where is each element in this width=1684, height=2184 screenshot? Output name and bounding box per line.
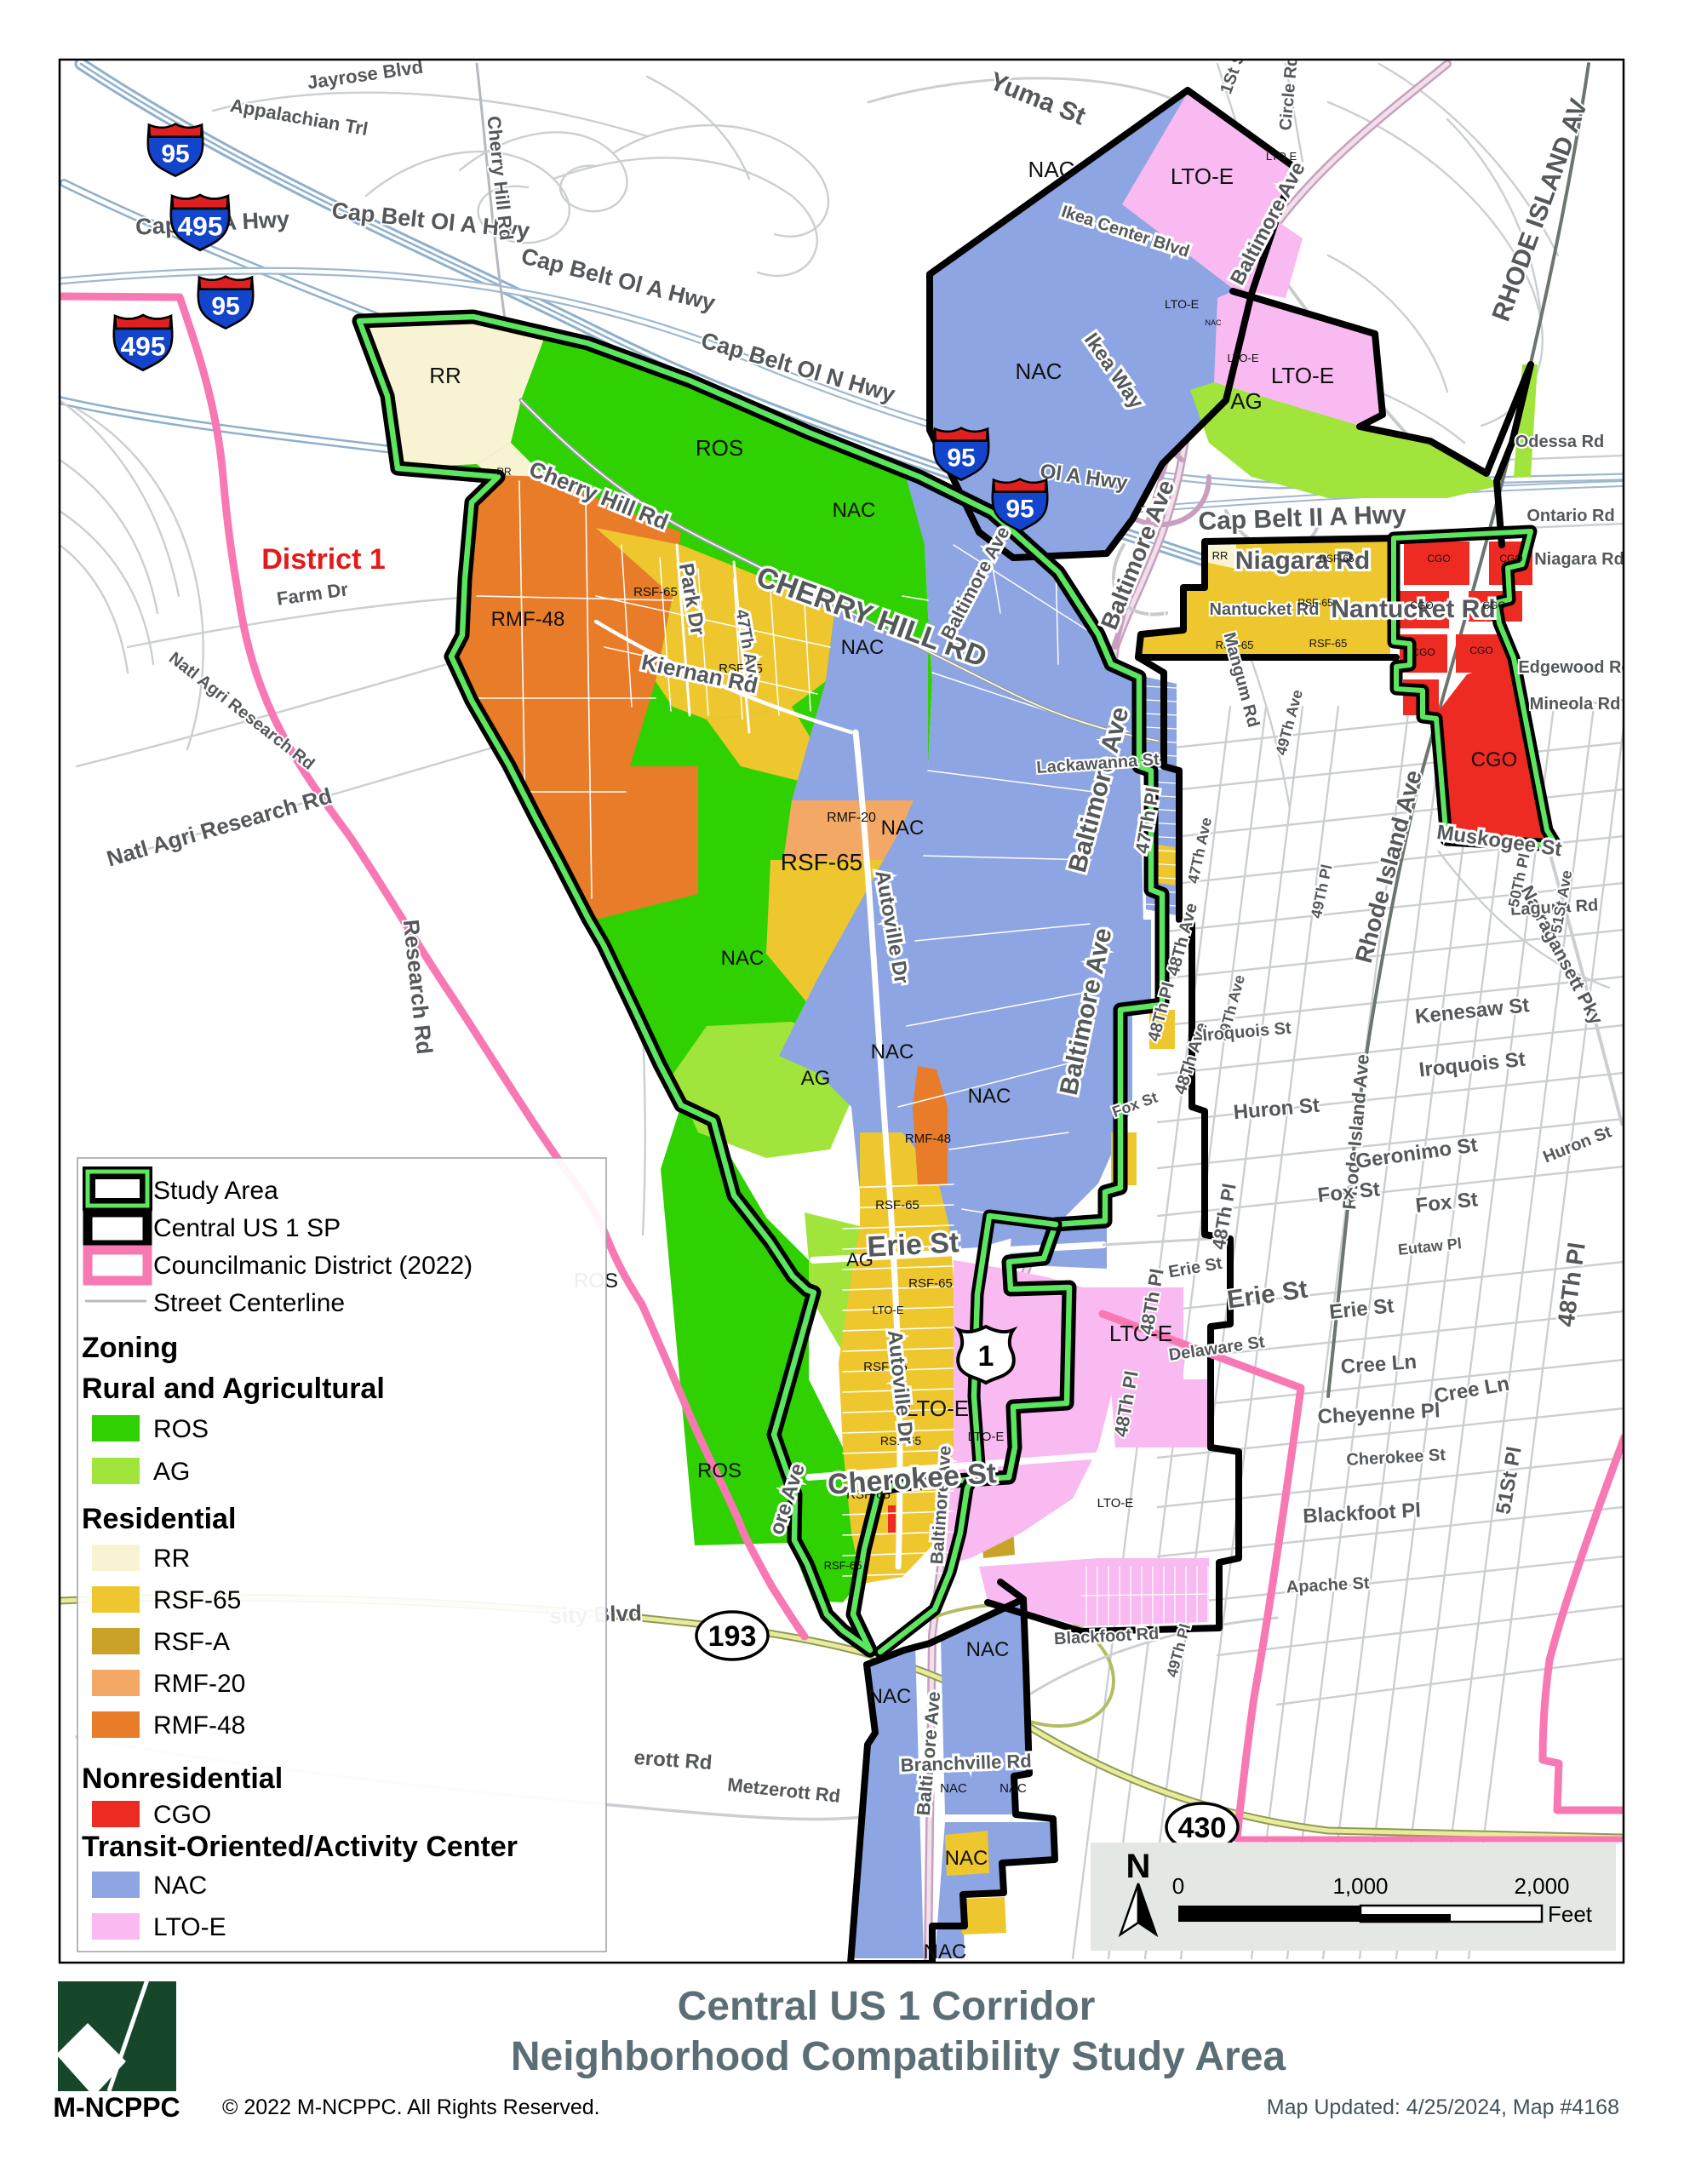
svg-text:Niagara Rd: Niagara Rd	[1534, 550, 1624, 569]
svg-text:RMF-48: RMF-48	[153, 1711, 245, 1740]
svg-text:Street Centerline: Street Centerline	[153, 1289, 345, 1317]
svg-text:NAC: NAC	[1028, 157, 1075, 182]
svg-text:CGO: CGO	[1412, 646, 1435, 658]
svg-text:0: 0	[1172, 1873, 1184, 1899]
svg-text:95: 95	[211, 293, 239, 321]
svg-text:Mineola Rd: Mineola Rd	[1530, 695, 1621, 714]
svg-text:NAC: NAC	[1205, 318, 1222, 327]
svg-text:RMF-20: RMF-20	[153, 1670, 245, 1698]
svg-text:CGO: CGO	[153, 1801, 211, 1829]
svg-text:Feet: Feet	[1548, 1901, 1593, 1927]
svg-text:Erie St: Erie St	[867, 1226, 960, 1264]
svg-text:NAC: NAC	[924, 1940, 967, 1963]
svg-text:RR: RR	[153, 1545, 190, 1573]
svg-text:RMF-20: RMF-20	[827, 811, 876, 825]
svg-text:Map Updated: 4/25/2024, Map #4: Map Updated: 4/25/2024, Map #4168	[1267, 2095, 1619, 2119]
svg-text:495: 495	[177, 211, 222, 242]
svg-text:1: 1	[978, 1340, 994, 1373]
svg-text:CGO: CGO	[1427, 553, 1450, 565]
svg-text:NAC: NAC	[966, 1638, 1010, 1661]
svg-text:1,000: 1,000	[1332, 1873, 1388, 1899]
svg-text:RSF-65: RSF-65	[1319, 553, 1355, 565]
svg-text:NAC: NAC	[833, 499, 876, 522]
svg-text:RR: RR	[429, 363, 461, 388]
svg-text:CGO: CGO	[1471, 748, 1518, 771]
svg-text:95: 95	[1005, 496, 1034, 524]
svg-text:Rural and Agricultural: Rural and Agricultural	[82, 1373, 385, 1405]
svg-text:Transit-Oriented/Activity Cent: Transit-Oriented/Activity Center	[82, 1831, 518, 1863]
svg-text:NAC: NAC	[153, 1872, 207, 1900]
svg-text:LTO-E: LTO-E	[872, 1304, 903, 1316]
svg-text:95: 95	[161, 140, 189, 169]
svg-text:RMF-48: RMF-48	[905, 1132, 951, 1146]
svg-text:NAC: NAC	[871, 1040, 914, 1063]
svg-text:ROS: ROS	[697, 1459, 742, 1482]
svg-text:ROS: ROS	[153, 1415, 209, 1443]
svg-text:RMF-48: RMF-48	[491, 608, 565, 631]
svg-text:RR: RR	[1212, 549, 1229, 562]
svg-text:NAC: NAC	[945, 1847, 988, 1870]
svg-text:AG: AG	[801, 1067, 831, 1090]
svg-text:M-NCPPC: M-NCPPC	[53, 2092, 180, 2123]
svg-text:Councilmanic District (2022): Councilmanic District (2022)	[153, 1252, 473, 1280]
svg-text:LTO-E: LTO-E	[1271, 363, 1334, 388]
svg-text:Neighborhood Compatibility Stu: Neighborhood Compatibility Study Area	[511, 2034, 1286, 2079]
svg-text:RSF-65: RSF-65	[908, 1276, 953, 1291]
svg-text:RSF-65: RSF-65	[875, 1198, 919, 1212]
svg-text:Edgewood Rd: Edgewood Rd	[1518, 658, 1631, 677]
svg-text:RSF-65: RSF-65	[1309, 637, 1348, 650]
svg-text:95: 95	[947, 444, 975, 473]
svg-text:LTO-E: LTO-E	[153, 1913, 226, 1941]
svg-text:CGO: CGO	[1482, 599, 1505, 611]
svg-text:NAC: NAC	[940, 1781, 967, 1796]
svg-text:Central US 1 SP: Central US 1 SP	[153, 1214, 341, 1242]
svg-text:NAC: NAC	[1016, 358, 1063, 384]
svg-text:Study Area: Study Area	[153, 1177, 278, 1205]
svg-text:NAC: NAC	[1000, 1781, 1027, 1796]
svg-text:LTO-E: LTO-E	[1165, 297, 1199, 311]
svg-text:Zoning: Zoning	[82, 1332, 178, 1364]
svg-text:NAC: NAC	[868, 1685, 912, 1708]
svg-text:193: 193	[708, 1620, 757, 1653]
svg-text:NAC: NAC	[841, 636, 885, 659]
svg-text:RSF-65: RSF-65	[824, 1559, 862, 1572]
svg-text:Odessa Rd: Odessa Rd	[1515, 433, 1604, 451]
svg-text:© 2022 M-NCPPC. All Rights Res: © 2022 M-NCPPC. All Rights Reserved.	[222, 2095, 600, 2119]
svg-text:RSF-65: RSF-65	[633, 585, 678, 599]
svg-text:NAC: NAC	[721, 947, 765, 970]
svg-text:AG: AG	[153, 1458, 190, 1486]
svg-text:LTO-E: LTO-E	[1097, 1496, 1134, 1510]
svg-text:RR: RR	[496, 466, 512, 478]
svg-text:NAC: NAC	[881, 817, 925, 840]
svg-text:495: 495	[120, 331, 165, 362]
svg-text:CGO: CGO	[1410, 599, 1433, 611]
svg-text:CGO: CGO	[1469, 645, 1492, 656]
svg-text:N: N	[1126, 1848, 1151, 1885]
svg-text:RSF-65: RSF-65	[153, 1586, 241, 1614]
svg-text:AG: AG	[1230, 388, 1263, 414]
svg-text:RSF-65: RSF-65	[781, 849, 862, 875]
svg-text:Residential: Residential	[82, 1503, 236, 1535]
svg-text:RSF-A: RSF-A	[153, 1628, 230, 1656]
svg-text:LTO-E: LTO-E	[968, 1430, 1005, 1444]
svg-text:LTO-E: LTO-E	[1171, 163, 1234, 189]
svg-text:ROS: ROS	[696, 435, 743, 461]
svg-text:LTO-E: LTO-E	[1227, 352, 1258, 364]
svg-text:NAC: NAC	[968, 1085, 1011, 1108]
svg-text:Central US 1 Corridor: Central US 1 Corridor	[678, 1984, 1096, 2029]
svg-text:2,000: 2,000	[1514, 1873, 1569, 1899]
svg-text:430: 430	[1178, 1812, 1227, 1844]
svg-text:RSF-65: RSF-65	[1297, 597, 1333, 609]
svg-text:Nonresidential: Nonresidential	[82, 1763, 283, 1795]
svg-text:District 1: District 1	[261, 543, 386, 576]
svg-text:CGO: CGO	[1499, 553, 1522, 565]
svg-text:Ontario Rd: Ontario Rd	[1526, 507, 1614, 525]
